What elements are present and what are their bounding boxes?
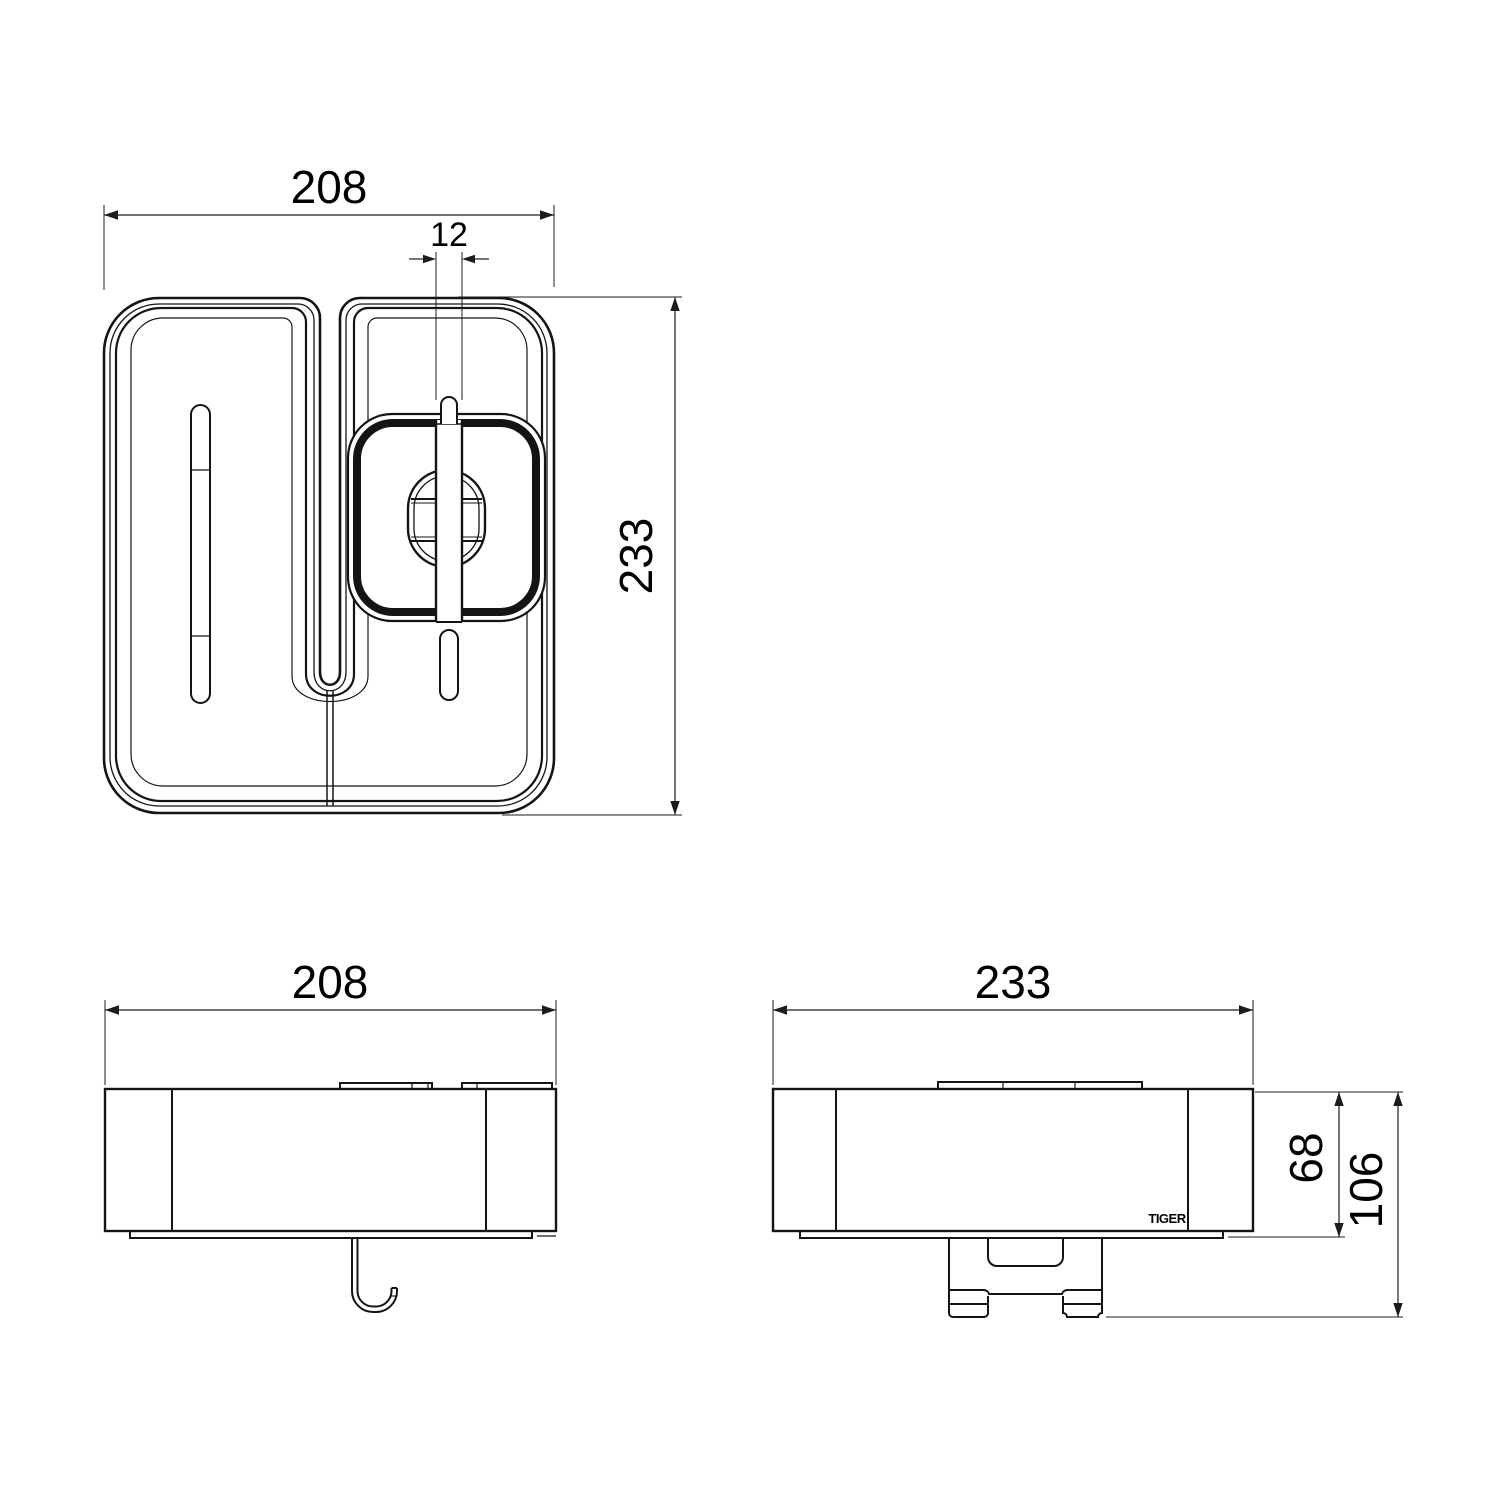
arrowhead (104, 210, 118, 219)
bracket-left-foot (949, 1239, 988, 1317)
dim-front-width: 208 (105, 956, 556, 1085)
technical-drawing: 208 12 233 (0, 0, 1500, 1500)
front-hook (352, 1239, 397, 1312)
arrowhead (670, 801, 679, 815)
dim-label-side-depth: 233 (975, 956, 1052, 1008)
arrowhead (773, 1005, 787, 1014)
arrowhead (462, 255, 475, 264)
bracket-cutout (988, 1239, 1063, 1266)
dim-label-total-height: 106 (1340, 1152, 1392, 1229)
dim-label-body-height: 68 (1280, 1132, 1332, 1183)
arrowhead (542, 1005, 556, 1014)
side-body: TIGER (773, 1082, 1253, 1238)
top-view: 208 12 233 (104, 161, 682, 815)
dim-label-top-depth: 233 (610, 518, 662, 595)
arrowhead (670, 297, 679, 311)
arrowhead (1393, 1092, 1402, 1106)
arrowhead (1393, 1303, 1402, 1317)
side-view: TIGER 233 68 (773, 956, 1403, 1317)
bar-lower-pill (440, 630, 458, 700)
arrowhead (1239, 1005, 1253, 1014)
bracket-right-foot (1063, 1239, 1102, 1317)
hook-inner (358, 1239, 392, 1307)
left-drain-slot (191, 405, 210, 703)
dim-label-hook-slot: 12 (430, 216, 468, 254)
dim-label-top-width: 208 (291, 161, 368, 213)
bar-tip (441, 397, 457, 424)
dim-top-width: 208 (104, 161, 554, 290)
hook-outer (352, 1239, 397, 1312)
front-body (105, 1083, 556, 1238)
hook-bar (436, 397, 462, 700)
arrowhead (423, 255, 436, 264)
arrowhead (105, 1005, 119, 1014)
dim-side-depth: 233 (773, 956, 1253, 1085)
dim-total-height: 106 (1106, 1092, 1403, 1317)
body-outline (773, 1089, 1253, 1231)
mount-bracket (949, 1239, 1102, 1317)
bar-fill (436, 420, 462, 622)
drawing-sheet: 208 12 233 (0, 0, 1500, 1500)
arrowhead (1334, 1092, 1343, 1106)
dim-label-front-width: 208 (292, 956, 369, 1008)
brand-logo: TIGER (1148, 1211, 1186, 1226)
slot-outline (191, 405, 210, 703)
bracket-fold-line (949, 1290, 1102, 1294)
front-view: 208 (105, 956, 556, 1312)
arrowhead (540, 210, 554, 219)
